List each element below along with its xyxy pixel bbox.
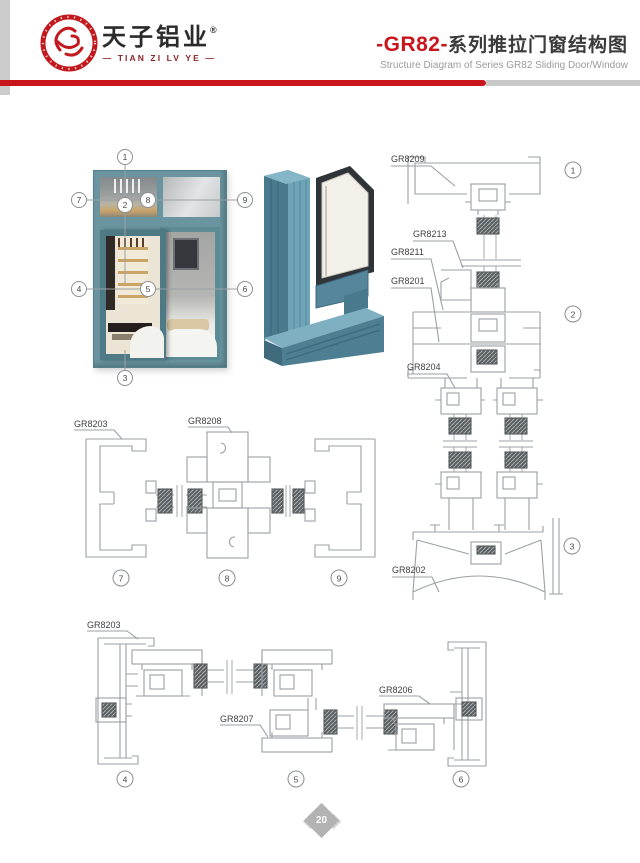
- profile-geometry: [74, 427, 375, 558]
- profile-3d-render: [256, 156, 390, 370]
- series-code: -GR82-: [376, 33, 448, 56]
- svg-text:5: 5: [294, 774, 299, 784]
- label-gr8213: GR8213: [413, 229, 447, 239]
- callout-mid-9: 9: [331, 570, 347, 586]
- callout-2: 2: [118, 198, 133, 213]
- vertical-section-drawing: GR8209 GR8213 GR8211 GR8201 GR8204 GR820…: [383, 142, 640, 612]
- callout-3: 3: [118, 371, 133, 386]
- label-gr8211: GR8211: [391, 247, 424, 257]
- label-gr8206: GR8206: [379, 685, 413, 695]
- page-number: 20: [309, 808, 334, 833]
- callout-4: 4: [72, 282, 87, 297]
- svg-text:5: 5: [146, 284, 151, 294]
- label-gr8208: GR8208: [188, 416, 222, 426]
- brand-block: 天子铝业® — TIAN ZI LV YE —: [102, 25, 217, 63]
- label-gr8203-bottom: GR8203: [87, 620, 121, 630]
- svg-text:7: 7: [77, 195, 82, 205]
- label-gr8201: GR8201: [391, 276, 425, 286]
- profile-geometry: [87, 631, 486, 766]
- svg-text:1: 1: [123, 152, 128, 162]
- svg-text:2: 2: [571, 309, 576, 319]
- svg-text:3: 3: [570, 541, 575, 551]
- svg-text:8: 8: [146, 195, 151, 205]
- render-geometry: [264, 166, 384, 366]
- profile-geometry: [391, 157, 563, 600]
- label-gr8209: GR8209: [391, 154, 425, 164]
- company-logo-seal-icon: [40, 14, 98, 72]
- callout-leader-lines: [87, 165, 237, 370]
- callout-6: 6: [238, 282, 253, 297]
- registered-mark: ®: [210, 25, 217, 35]
- photo-callouts: 1 7 2 8 9 4 5 6 3: [60, 145, 260, 395]
- callout-vs-3: 3: [564, 538, 580, 554]
- callout-vs-2: 2: [565, 306, 581, 322]
- callout-mid-7: 7: [113, 570, 129, 586]
- svg-text:3: 3: [123, 373, 128, 383]
- header-rule-red: [0, 80, 486, 86]
- callout-bot-5: 5: [288, 771, 304, 787]
- svg-text:8: 8: [225, 573, 230, 583]
- page-number-marker: 20: [305, 807, 339, 837]
- svg-text:6: 6: [243, 284, 248, 294]
- callout-8: 8: [141, 193, 156, 208]
- title-chinese: 系列推拉门窗结构图: [448, 35, 628, 56]
- label-gr8207: GR8207: [220, 714, 254, 724]
- svg-text:4: 4: [77, 284, 82, 294]
- title-english: Structure Diagram of Series GR82 Sliding…: [376, 60, 628, 71]
- svg-text:1: 1: [571, 165, 576, 175]
- header-rule-gray: [486, 80, 640, 86]
- callout-vs-1: 1: [565, 162, 581, 178]
- page-title: -GR82-系列推拉门窗结构图 Structure Diagram of Ser…: [376, 30, 628, 71]
- svg-text:2: 2: [123, 200, 128, 210]
- label-gr8204: GR8204: [407, 362, 441, 372]
- svg-text:9: 9: [243, 195, 248, 205]
- catalog-page: 天子铝业® — TIAN ZI LV YE — -GR82-系列推拉门窗结构图 …: [0, 0, 640, 863]
- callout-9: 9: [238, 193, 253, 208]
- callout-mid-8: 8: [219, 570, 235, 586]
- callout-5: 5: [141, 282, 156, 297]
- label-gr8203-mid: GR8203: [74, 419, 108, 429]
- callout-1: 1: [118, 150, 133, 165]
- brand-name-cn: 天子铝业: [102, 24, 210, 51]
- svg-text:6: 6: [459, 774, 464, 784]
- callout-bot-4: 4: [117, 771, 133, 787]
- svg-text:9: 9: [337, 573, 342, 583]
- brand-name-en: — TIAN ZI LV YE —: [102, 53, 217, 63]
- label-gr8202: GR8202: [392, 565, 426, 575]
- callout-bot-6: 6: [453, 771, 469, 787]
- mid-horizontal-section-drawing: GR8203 GR8208 7 8 9: [58, 405, 388, 590]
- svg-text:7: 7: [119, 573, 124, 583]
- svg-text:4: 4: [123, 774, 128, 784]
- bottom-horizontal-section-drawing: GR8203 GR8207 GR8206 4 5 6: [58, 614, 518, 794]
- photo-callout-circles: 1 7 2 8 9 4 5 6 3: [72, 150, 253, 386]
- callout-7: 7: [72, 193, 87, 208]
